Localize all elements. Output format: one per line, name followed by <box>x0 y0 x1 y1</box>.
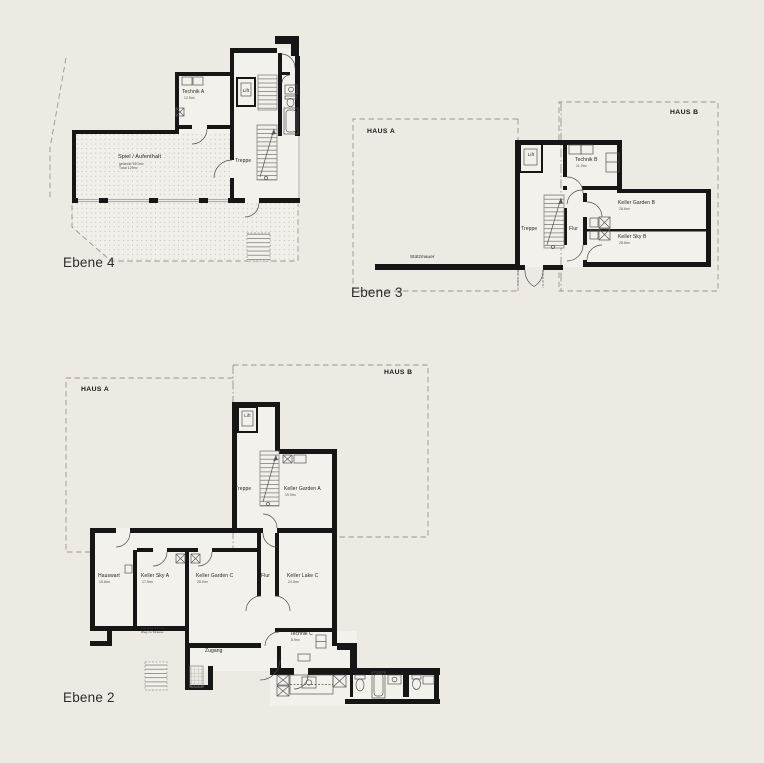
floor-grate-icon <box>190 666 203 687</box>
room-area-technik-b: 11.0m² <box>576 165 587 168</box>
stairs-icon <box>544 195 564 249</box>
room-label-spiel: Spiel / Aufenthalt <box>118 155 161 161</box>
level-caption-ebene4: Ebene 4 <box>63 256 115 270</box>
room-area-keller-garden-a: 19.9m² <box>285 494 296 497</box>
floorplan-ebene3: HAUS A HAUS B Lift Technik B 11.0m² Trep… <box>350 98 750 308</box>
floorplan-ebene4: Technik A 12.5m² Lift Treppe Spiel / Auf… <box>35 28 320 278</box>
haus-a-label: HAUS A <box>367 129 395 136</box>
room-label-keller-garden-c: Keller Garden C <box>196 574 233 579</box>
haus-a-label: HAUS A <box>81 387 109 394</box>
haus-b-label: HAUS B <box>670 110 698 117</box>
stuetzmauer-label: Stützmauer <box>410 255 435 260</box>
haus-b-label: HAUS B <box>384 370 412 377</box>
room-label-flur: Flur <box>569 227 578 232</box>
room-label-keller-sky-a: Keller Sky A <box>141 574 169 579</box>
room-label-keller-garden-a: Keller Garden A <box>284 487 321 492</box>
room-area-keller-garden-c: 28.0m² <box>197 581 208 584</box>
room-area-keller-sky-a: 17.5m² <box>142 581 153 584</box>
room-label-technik-c: Technik C <box>290 632 313 637</box>
floorplan-ebene2: HAUS A HAUS B Lift Treppe Keller Garden … <box>58 358 448 713</box>
room-label-treppe: Treppe <box>521 227 537 232</box>
level-caption-ebene3: Ebene 3 <box>351 286 403 300</box>
room-label-treppe: Treppe <box>235 487 251 492</box>
room-label-keller-sky-b: Keller Sky B <box>618 235 646 240</box>
small-note-line2: Weg zu Strasse <box>141 631 164 634</box>
floor-fills <box>90 402 440 706</box>
room-label-technik-a: Technik A <box>182 90 204 95</box>
drawing-ebene4 <box>35 28 320 278</box>
room-label-treppe: Treppe <box>235 159 251 164</box>
level-caption-ebene2: Ebene 2 <box>63 691 115 705</box>
room-area-keller-garden-b: 28.6m² <box>619 208 630 211</box>
drawing-ebene2 <box>58 358 448 713</box>
room-area-technik-a: 12.5m² <box>184 97 195 100</box>
room-label-zugang: Zugang <box>205 649 223 654</box>
room-label-lift: Lift <box>238 414 257 419</box>
floorplan-sheet: { "canvas": { "background": "#edeae4", "… <box>0 0 764 763</box>
room-area-keller-sky-b: 28.8m² <box>619 242 630 245</box>
room-area-keller-lake-c: 24.0m² <box>288 581 299 584</box>
room-area-technik-c: 8.9m² <box>291 639 300 642</box>
room-label-flur: Flur <box>261 574 270 579</box>
outdoor-stairs-icon <box>145 662 167 690</box>
stairs-icon <box>260 451 279 506</box>
room-label-technik-b: Technik B <box>575 158 598 163</box>
room-area-spiel-2: Total 129m² <box>119 167 138 170</box>
room-label-keller-garden-b: Keller Garden B <box>618 201 655 206</box>
room-area-hauswart: 15.8m² <box>99 581 110 584</box>
room-label-keller-lake-c: Keller Lake C <box>287 574 318 579</box>
room-label-lift: Lift <box>520 153 542 158</box>
room-label-hauswart: Hauswart <box>98 574 120 579</box>
drawing-ebene3 <box>350 98 750 308</box>
room-label-lift: Lift <box>237 89 255 94</box>
